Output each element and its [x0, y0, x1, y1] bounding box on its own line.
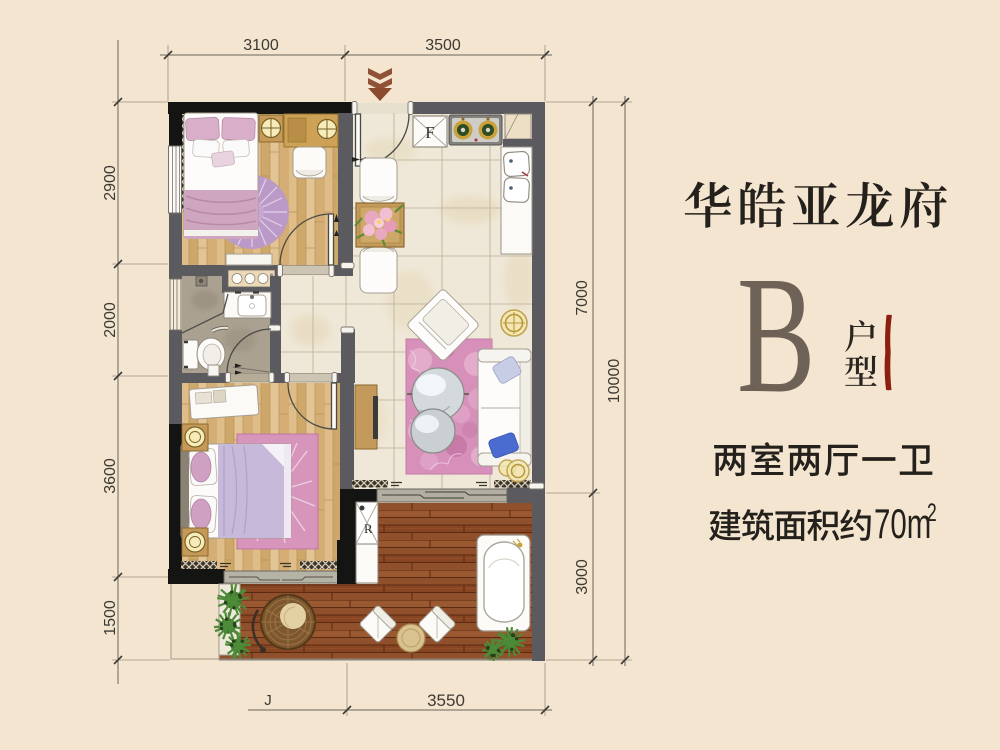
svg-text:2900: 2900 [102, 165, 119, 201]
svg-text:10000: 10000 [606, 359, 623, 404]
svg-text:3500: 3500 [425, 37, 461, 54]
svg-text:70m: 70m [874, 500, 931, 548]
svg-text:2: 2 [927, 498, 937, 527]
svg-text:3600: 3600 [102, 458, 119, 494]
svg-text:3100: 3100 [243, 37, 279, 54]
svg-text:R: R [364, 521, 373, 536]
svg-text:J: J [264, 692, 272, 709]
svg-text:2000: 2000 [102, 302, 119, 338]
svg-text:1500: 1500 [102, 600, 119, 636]
svg-text:7000: 7000 [574, 280, 591, 316]
svg-text:B: B [737, 243, 815, 428]
svg-text:F: F [425, 123, 434, 142]
svg-text:3550: 3550 [427, 691, 465, 710]
svg-text:3000: 3000 [574, 559, 591, 595]
